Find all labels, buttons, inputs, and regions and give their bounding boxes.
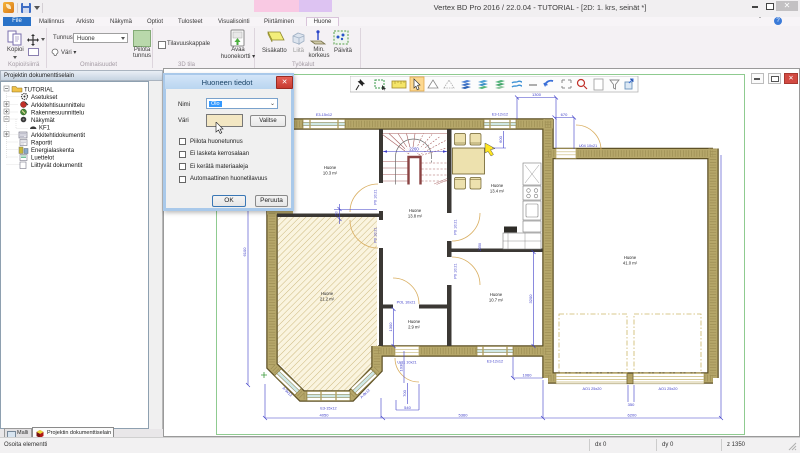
- svg-text:Arkkitehtidokumentit: Arkkitehtidokumentit: [31, 133, 85, 139]
- svg-text:Huone: Huone: [491, 183, 504, 188]
- svg-text:10.7 m²: 10.7 m²: [489, 298, 504, 303]
- svg-text:TUTORIAL: TUTORIAL: [24, 88, 54, 94]
- svg-text:Huone: Huone: [409, 208, 422, 213]
- svg-text:6100: 6100: [242, 247, 247, 257]
- svg-text:2.9 m²: 2.9 m²: [408, 325, 420, 330]
- svg-text:670: 670: [561, 112, 568, 117]
- svg-text:13.8 m²: 13.8 m²: [408, 214, 423, 219]
- svg-text:Huone: Huone: [490, 292, 503, 297]
- svg-text:1300: 1300: [388, 322, 393, 332]
- svg-text:2260: 2260: [409, 147, 419, 152]
- svg-text:5360: 5360: [459, 412, 469, 417]
- svg-text:P0 10:21: P0 10:21: [454, 219, 458, 234]
- svg-text:3200: 3200: [528, 294, 533, 304]
- svg-text:AO1 25x20: AO1 25x20: [659, 387, 678, 391]
- svg-text:UO1 10x21: UO1 10x21: [397, 360, 416, 364]
- svg-text:Huone: Huone: [324, 165, 337, 170]
- svg-text:2050: 2050: [478, 243, 482, 251]
- svg-text:13.4 m²: 13.4 m²: [490, 189, 505, 194]
- svg-text:KF1: KF1: [39, 126, 51, 132]
- svg-text:AO1 25x20: AO1 25x20: [583, 387, 602, 391]
- svg-text:E3-12x12: E3-12x12: [492, 112, 508, 116]
- svg-text:U04 10x21: U04 10x21: [579, 144, 597, 148]
- svg-text:Liittyvät dokumentit: Liittyvät dokumentit: [31, 163, 83, 169]
- svg-text:700: 700: [402, 389, 407, 396]
- svg-text:Arkkitehtisuunnittelu: Arkkitehtisuunnittelu: [31, 103, 85, 109]
- svg-text:350: 350: [628, 402, 635, 407]
- svg-text:E3-12x12: E3-12x12: [487, 359, 503, 363]
- svg-text:Huone: Huone: [408, 319, 421, 324]
- svg-text:540: 540: [404, 405, 411, 410]
- svg-text:Näkymät: Näkymät: [31, 118, 55, 124]
- svg-text:E3-15x12: E3-15x12: [320, 406, 336, 410]
- svg-text:Energialaskenta: Energialaskenta: [31, 148, 75, 154]
- svg-text:P0 10:21: P0 10:21: [454, 263, 458, 278]
- svg-text:Raportit: Raportit: [31, 141, 52, 147]
- svg-text:41.0 m²: 41.0 m²: [623, 261, 638, 266]
- svg-text:POL 10x21: POL 10x21: [397, 300, 416, 304]
- svg-text:Huone: Huone: [321, 291, 334, 296]
- svg-text:P0 10:21: P0 10:21: [374, 227, 378, 242]
- svg-text:1060: 1060: [523, 372, 533, 377]
- svg-text:P0 10:21: P0 10:21: [374, 189, 378, 204]
- svg-text:4050: 4050: [320, 412, 330, 417]
- svg-text:E3-15x12: E3-15x12: [316, 113, 332, 117]
- svg-text:10.3 m²: 10.3 m²: [323, 171, 338, 176]
- svg-text:Rakennesuunnittelu: Rakennesuunnittelu: [31, 111, 84, 117]
- svg-text:600: 600: [498, 135, 503, 142]
- svg-text:Asetukset: Asetukset: [31, 95, 58, 101]
- svg-text:150: 150: [335, 211, 339, 217]
- svg-text:6200: 6200: [628, 412, 638, 417]
- svg-text:Huone: Huone: [624, 255, 637, 260]
- svg-text:Luettelot: Luettelot: [31, 156, 54, 162]
- svg-text:21.2 m²: 21.2 m²: [320, 297, 335, 302]
